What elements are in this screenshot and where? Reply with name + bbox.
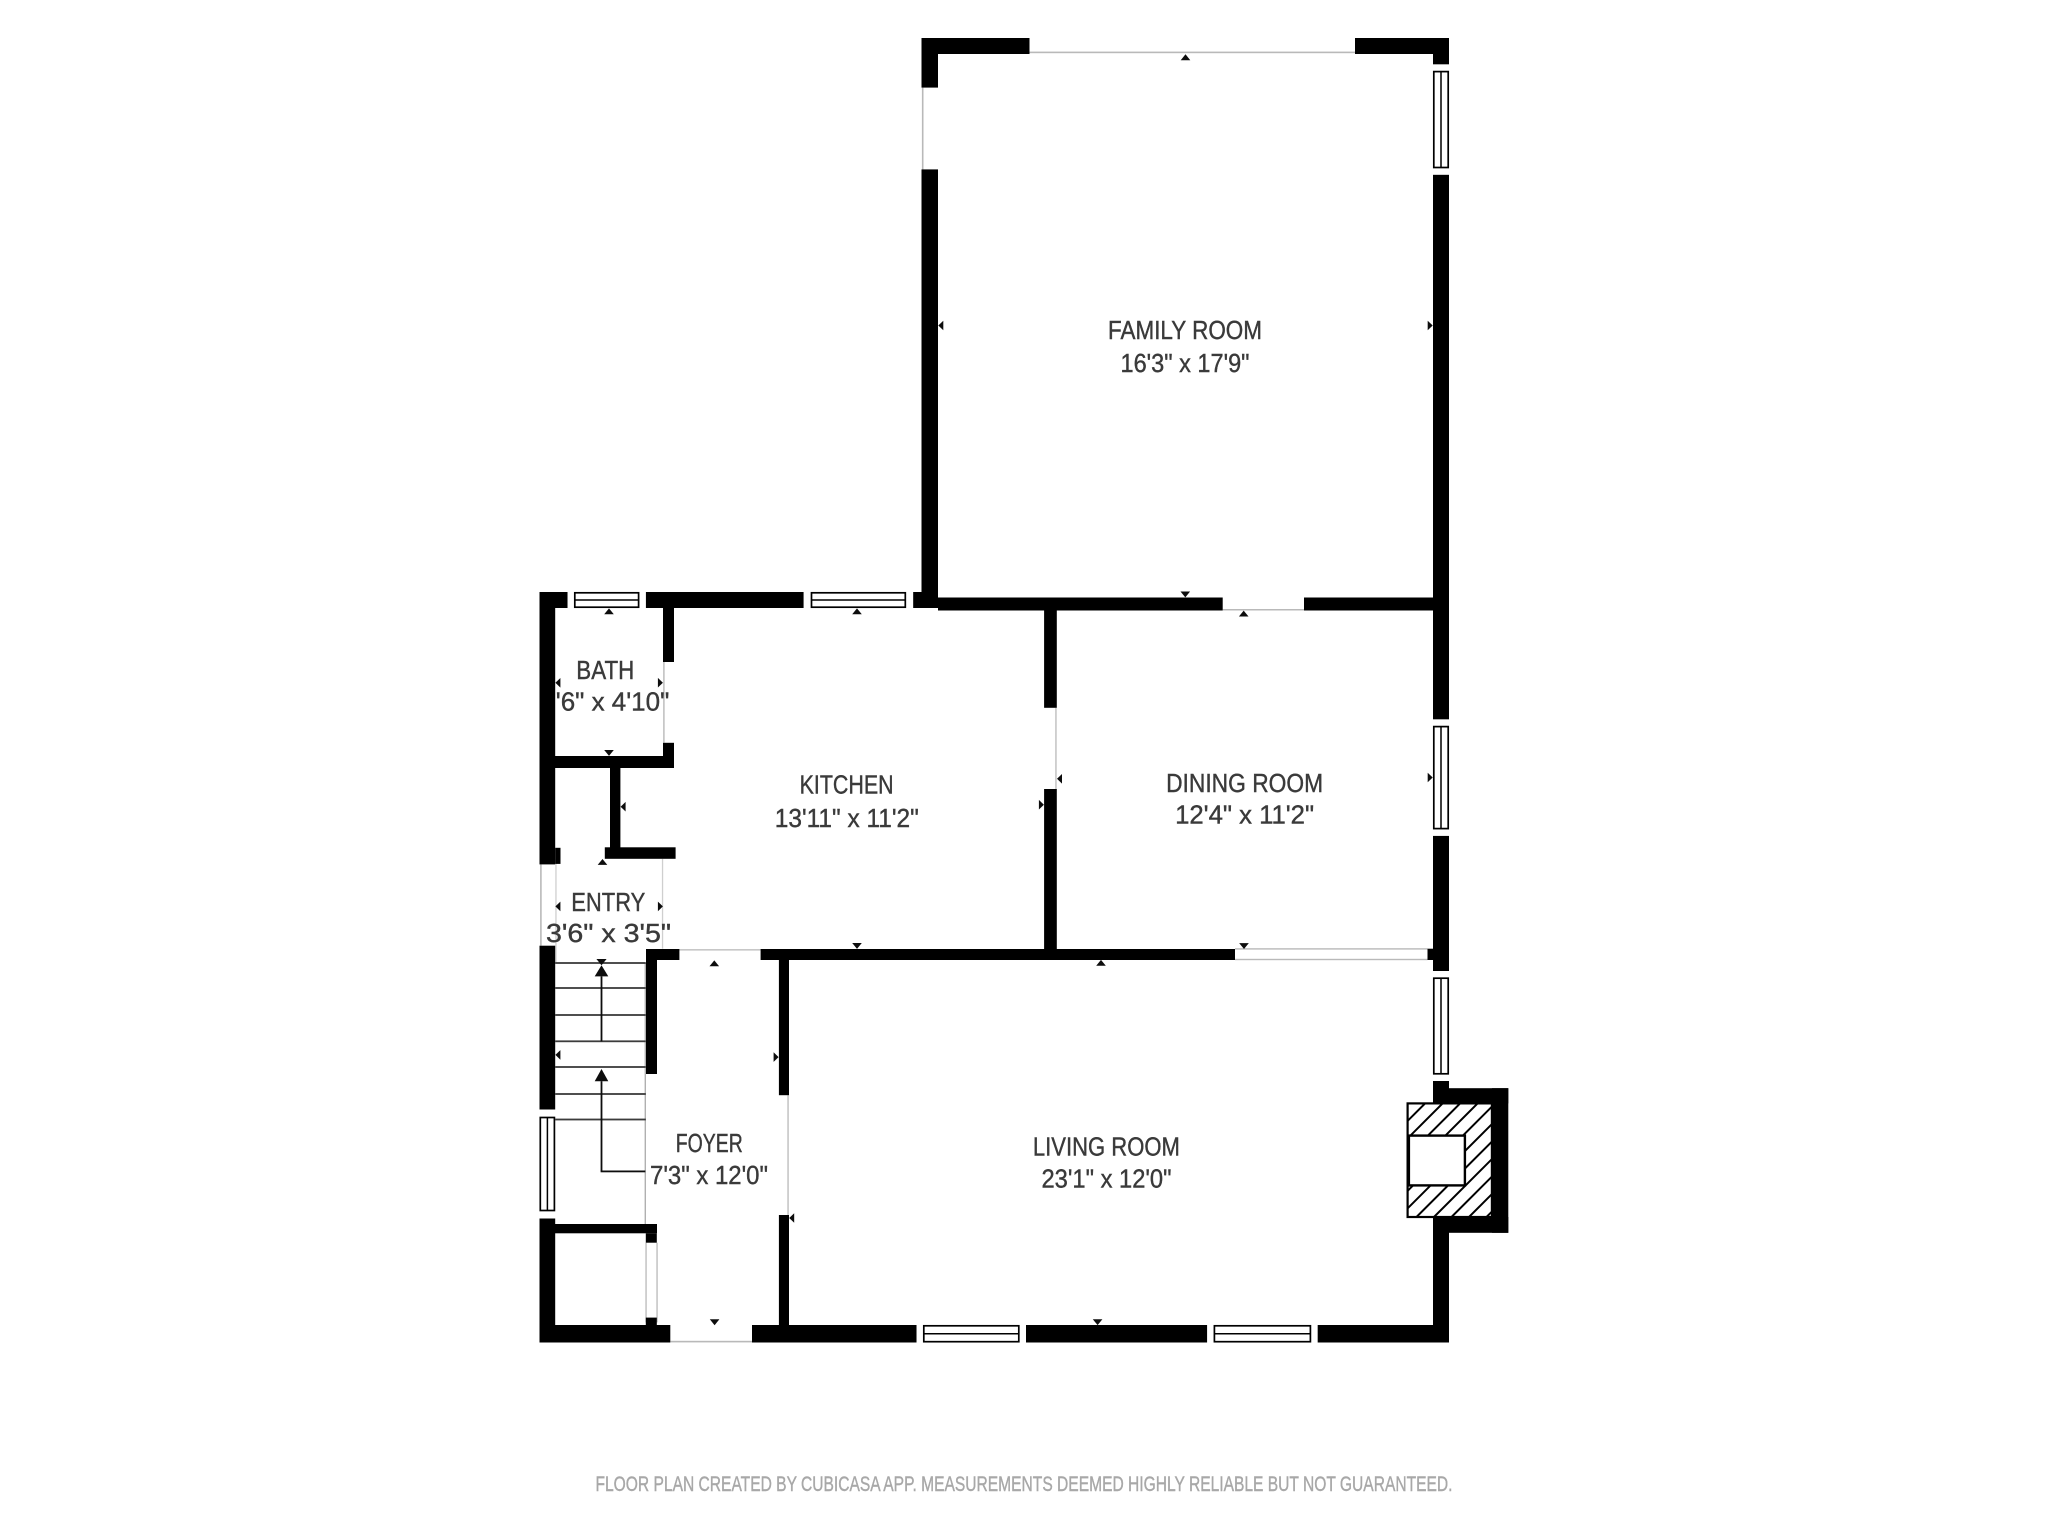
svg-text:13'11" x 11'2": 13'11" x 11'2" [775,803,919,833]
svg-text:3'6" x 4'10": 3'6" x 4'10" [541,686,669,716]
svg-text:23'1" x 12'0": 23'1" x 12'0" [1042,1163,1172,1193]
svg-text:12'4" x 11'2": 12'4" x 11'2" [1175,800,1314,830]
svg-text:ENTRY: ENTRY [571,887,645,917]
svg-text:BATH: BATH [576,655,634,685]
svg-text:7'3" x 12'0": 7'3" x 12'0" [650,1160,768,1190]
svg-text:FOYER: FOYER [676,1128,743,1158]
svg-text:16'3" x 17'9": 16'3" x 17'9" [1121,348,1250,378]
svg-text:LIVING ROOM: LIVING ROOM [1033,1132,1180,1162]
svg-text:KITCHEN: KITCHEN [800,770,894,800]
svg-text:3'6" x 3'5": 3'6" x 3'5" [546,918,671,948]
svg-text:FLOOR PLAN CREATED BY CUBICASA: FLOOR PLAN CREATED BY CUBICASA APP. MEAS… [596,1473,1453,1496]
svg-text:DINING ROOM: DINING ROOM [1166,768,1323,798]
svg-text:FAMILY ROOM: FAMILY ROOM [1108,315,1262,345]
